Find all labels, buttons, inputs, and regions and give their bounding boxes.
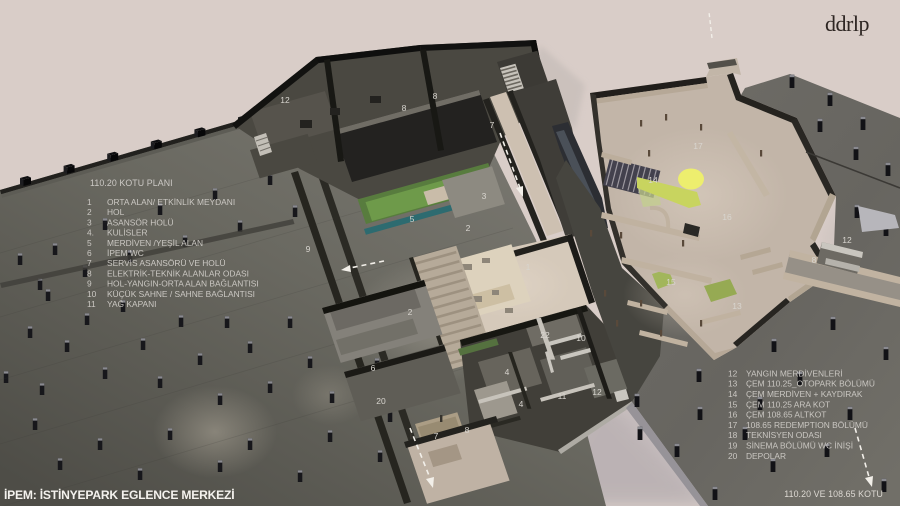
svg-text:19: 19 (728, 441, 738, 451)
svg-text:3: 3 (87, 217, 92, 227)
svg-text:8: 8 (402, 103, 407, 113)
svg-text:13: 13 (732, 301, 742, 311)
svg-text:12: 12 (280, 95, 290, 105)
svg-text:SİNEMA BÖLÜMÜ WC İNİŞİ: SİNEMA BÖLÜMÜ WC İNİŞİ (746, 441, 853, 451)
svg-text:8: 8 (465, 425, 470, 435)
svg-text:110.20 VE 108.65 KOTU: 110.20 VE 108.65 KOTU (784, 489, 883, 499)
svg-text:YAĞ KAPANI: YAĞ KAPANI (107, 299, 157, 309)
svg-text:4: 4 (505, 367, 510, 377)
svg-text:ÇEM MERDİVEN + KAYDIRAK: ÇEM MERDİVEN + KAYDIRAK (746, 389, 863, 399)
svg-text:16: 16 (728, 410, 738, 420)
svg-text:12: 12 (728, 368, 738, 378)
svg-text:110.20 KOTU PLANI: 110.20 KOTU PLANI (90, 178, 173, 188)
svg-text:16: 16 (722, 212, 732, 222)
svg-text:5: 5 (87, 238, 92, 248)
svg-text:KÜÇÜK SAHNE / SAHNE BAĞLANTISI: KÜÇÜK SAHNE / SAHNE BAĞLANTISI (107, 289, 255, 299)
svg-text:ÇEM 110.25_OTOPARK BÖLÜMÜ: ÇEM 110.25_OTOPARK BÖLÜMÜ (746, 379, 875, 389)
svg-text:22: 22 (540, 330, 550, 340)
svg-text:ÇEM 108.65 ALTKOT: ÇEM 108.65 ALTKOT (746, 410, 826, 420)
svg-text:DEPOLAR: DEPOLAR (746, 451, 786, 461)
svg-text:ÇEM 110.25 ARA KOT: ÇEM 110.25 ARA KOT (746, 399, 830, 409)
svg-text:SERVİS ASANSÖRÜ VE HOLÜ: SERVİS ASANSÖRÜ VE HOLÜ (107, 258, 226, 268)
svg-text:11: 11 (87, 299, 96, 309)
svg-text:9: 9 (306, 244, 311, 254)
svg-text:2: 2 (87, 207, 92, 217)
svg-text:KULİSLER: KULİSLER (107, 228, 148, 238)
svg-text:8: 8 (87, 269, 92, 279)
svg-text:12: 12 (592, 387, 602, 397)
svg-text:11: 11 (558, 391, 567, 401)
svg-text:TEKNİSYEN ODASI: TEKNİSYEN ODASI (746, 430, 822, 440)
svg-text:8: 8 (812, 255, 817, 265)
svg-text:YANGIN MERDİVENLERİ: YANGIN MERDİVENLERİ (746, 368, 843, 378)
svg-text:14: 14 (728, 389, 738, 399)
svg-text:108.65 REDEMPTION BÖLÜMÜ: 108.65 REDEMPTION BÖLÜMÜ (746, 420, 868, 430)
svg-text:10: 10 (576, 333, 586, 343)
svg-text:ASANSÖR HOLÜ: ASANSÖR HOLÜ (107, 217, 174, 227)
svg-text:13: 13 (728, 379, 738, 389)
svg-text:20: 20 (376, 396, 386, 406)
svg-text:12: 12 (842, 235, 852, 245)
svg-text:14: 14 (648, 175, 658, 185)
svg-text:10: 10 (87, 289, 97, 299)
svg-text:4: 4 (519, 399, 524, 409)
svg-text:HOL-YANGIN-ORTA ALAN BAĞLANTIS: HOL-YANGIN-ORTA ALAN BAĞLANTISI (107, 279, 259, 289)
svg-text:17: 17 (693, 141, 703, 151)
svg-text:9: 9 (87, 279, 92, 289)
svg-text:MERDİVEN /YEŞİL ALAN: MERDİVEN /YEŞİL ALAN (107, 238, 203, 248)
svg-text:1: 1 (526, 262, 531, 272)
svg-text:8: 8 (433, 91, 438, 101)
svg-text:ddrlp: ddrlp (825, 11, 869, 36)
svg-text:7: 7 (434, 431, 439, 441)
svg-text:6: 6 (87, 248, 92, 258)
svg-text:2: 2 (408, 307, 413, 317)
svg-text:ORTA ALAN/ ETKİNLİK MEYDANI: ORTA ALAN/ ETKİNLİK MEYDANI (107, 197, 235, 207)
svg-text:17: 17 (728, 420, 738, 430)
svg-text:3: 3 (482, 191, 487, 201)
svg-text:1: 1 (87, 197, 92, 207)
svg-text:18: 18 (728, 430, 738, 440)
svg-text:İPEM: İSTİNYEPARK EGLENCE MERK: İPEM: İSTİNYEPARK EGLENCE MERKEZİ (4, 487, 234, 502)
svg-text:15: 15 (728, 399, 738, 409)
svg-text:İPEM WC: İPEM WC (107, 248, 144, 258)
svg-text:7: 7 (490, 120, 495, 130)
svg-text:15: 15 (666, 277, 676, 287)
svg-text:5: 5 (410, 214, 415, 224)
svg-text:HOL: HOL (107, 207, 125, 217)
svg-text:4.: 4. (87, 228, 94, 238)
svg-text:20: 20 (728, 451, 738, 461)
svg-text:7: 7 (87, 258, 92, 268)
svg-text:6: 6 (371, 363, 376, 373)
svg-text:ELEKTRİK-TEKNİK ALANLAR ODASI: ELEKTRİK-TEKNİK ALANLAR ODASI (107, 269, 249, 279)
svg-text:2: 2 (466, 223, 471, 233)
